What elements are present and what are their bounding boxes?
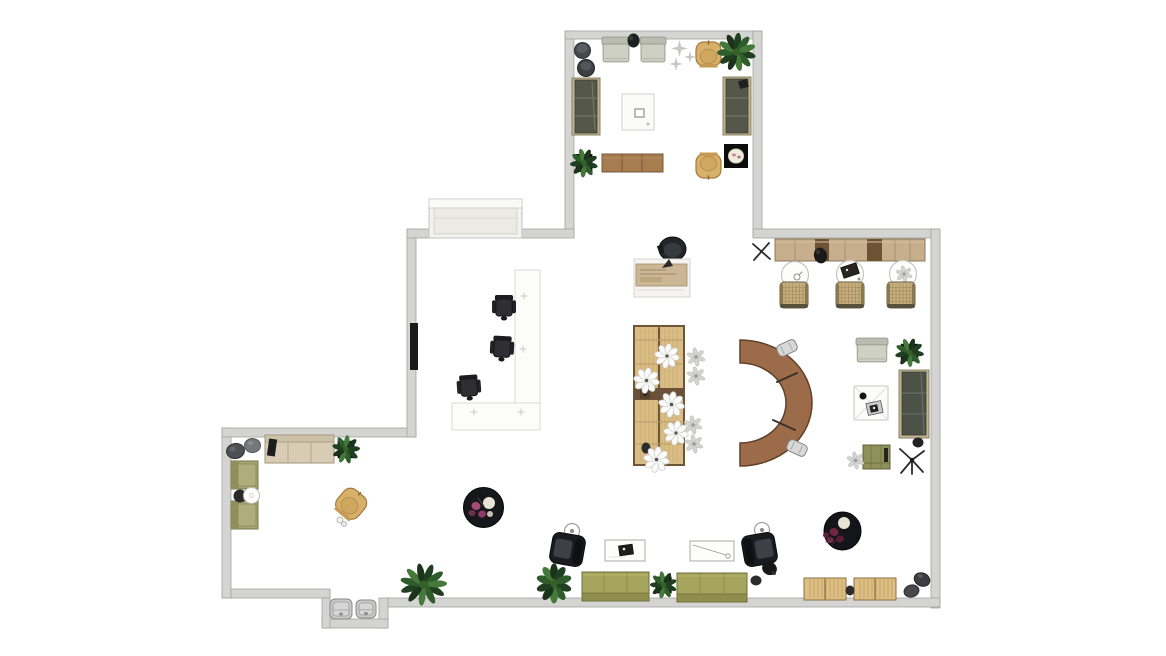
decor-fan-icon <box>847 452 864 469</box>
lounge-armchair <box>602 37 630 64</box>
olive-sofa <box>677 573 747 602</box>
wicker-armchair <box>780 282 808 308</box>
floor-plan-canvas <box>0 0 1166 656</box>
console-table <box>690 541 734 561</box>
rattan-bench <box>804 578 846 600</box>
small-decor <box>336 516 348 528</box>
decor-fan-icon <box>896 266 912 282</box>
potted-plant <box>895 338 924 367</box>
floor-pouf <box>573 41 593 61</box>
olive-sofa <box>582 572 649 601</box>
wicker-tub-chair <box>696 151 721 179</box>
potted-plant <box>717 33 756 71</box>
potted-plant <box>570 148 598 178</box>
office-chair <box>456 374 482 402</box>
lounge-armchair <box>640 37 666 64</box>
bottom-wall-left <box>222 589 330 598</box>
sideboard <box>602 154 663 172</box>
wicker-armchair <box>836 282 864 308</box>
coat-rack-icon <box>898 447 927 475</box>
potted-plant <box>650 571 677 599</box>
media-table <box>605 540 645 561</box>
reception-counter <box>429 199 522 238</box>
wall-counter <box>775 239 925 261</box>
rattan-bench <box>854 578 896 600</box>
desk-accessory <box>660 258 675 269</box>
shelving-cabinet <box>572 78 600 135</box>
sparkle-decor-icon <box>669 57 683 71</box>
flower-stool <box>659 392 684 417</box>
round-flower-table <box>462 486 505 529</box>
notch-bottom-wall <box>322 619 388 628</box>
leafy-plant <box>400 565 447 604</box>
office-chair <box>492 295 516 321</box>
black-stool <box>761 561 778 576</box>
leafy-plant <box>536 562 572 605</box>
round-flower-table <box>823 511 862 551</box>
black-rug-with-bowl <box>724 144 748 168</box>
lounge-armchair <box>856 338 888 364</box>
black-stool <box>750 575 762 586</box>
low-cabinet <box>863 445 890 469</box>
flower-stool <box>634 368 659 393</box>
white-side-table <box>243 487 260 504</box>
potted-plant <box>332 435 360 464</box>
office-chair <box>489 335 514 362</box>
three-seat-sofa <box>265 435 334 463</box>
folding-chair-icon <box>751 241 772 262</box>
waste-bin <box>356 600 376 618</box>
floor-pouf <box>244 438 261 453</box>
wicker-armchair <box>887 282 915 308</box>
coffee-table <box>622 94 654 130</box>
black-stool <box>845 585 855 596</box>
shelving-cabinet <box>899 370 929 438</box>
wing-top-wall <box>753 229 939 238</box>
olive-armchair <box>231 501 258 529</box>
floor-pouf <box>577 59 595 77</box>
flower-stool <box>644 447 669 472</box>
black-vase <box>627 33 640 48</box>
shelving-cabinet <box>723 77 751 135</box>
waste-bin <box>330 599 352 619</box>
olive-armchair <box>231 461 258 489</box>
wall-segment-b <box>518 229 574 238</box>
wall-mounted-screen <box>410 323 418 370</box>
right-wall <box>931 229 940 608</box>
sparkle-decor-icon <box>684 51 696 63</box>
square-side-table <box>854 386 888 420</box>
flower-stool <box>655 344 679 368</box>
black-stool <box>813 247 828 264</box>
